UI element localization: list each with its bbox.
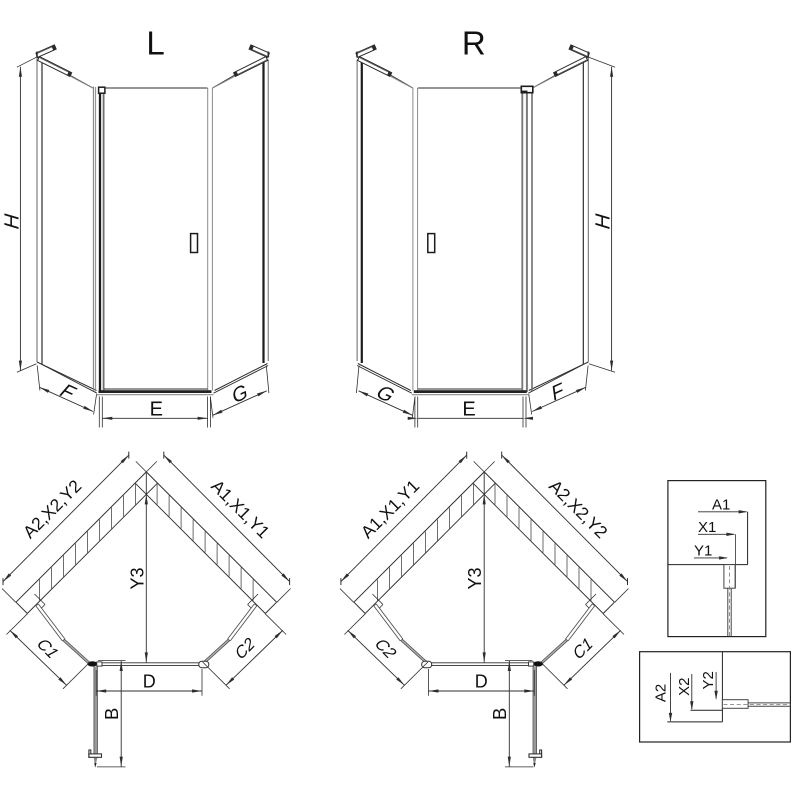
svg-text:L: L (146, 24, 164, 61)
svg-text:E: E (150, 398, 163, 420)
svg-text:H: H (592, 213, 615, 230)
svg-text:R: R (462, 24, 486, 61)
svg-text:Y2: Y2 (700, 671, 717, 689)
svg-text:E: E (462, 398, 475, 420)
svg-text:Y3: Y3 (127, 567, 147, 589)
svg-text:Y1: Y1 (694, 542, 712, 559)
svg-text:X2: X2 (676, 678, 693, 696)
svg-text:A1: A1 (712, 496, 730, 513)
svg-text:X1: X1 (698, 519, 716, 536)
svg-text:A2: A2 (653, 684, 670, 702)
svg-text:D: D (475, 672, 488, 692)
svg-text:B: B (489, 708, 510, 720)
svg-text:H: H (1, 213, 24, 230)
svg-text:B: B (101, 708, 122, 720)
svg-text:Y3: Y3 (465, 567, 485, 589)
svg-text:D: D (143, 672, 156, 692)
